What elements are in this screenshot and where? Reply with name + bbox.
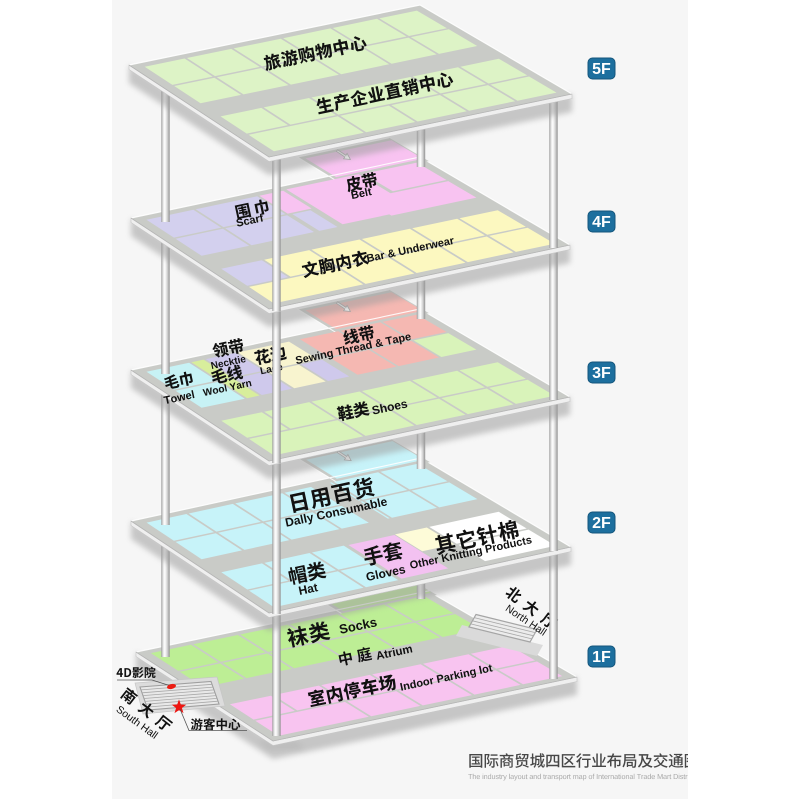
svg-text:4F: 4F (592, 214, 611, 231)
svg-text:3F: 3F (592, 365, 611, 382)
svg-text:1F: 1F (592, 649, 611, 666)
svg-text:5F: 5F (592, 61, 611, 78)
svg-text:2F: 2F (592, 515, 611, 532)
